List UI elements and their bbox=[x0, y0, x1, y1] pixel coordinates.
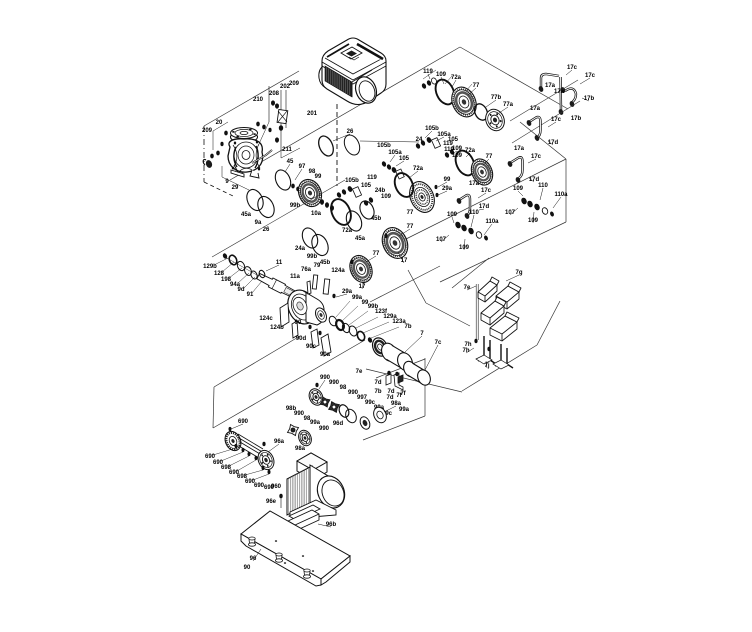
svg-text:109: 109 bbox=[447, 212, 458, 218]
svg-text:90: 90 bbox=[244, 565, 251, 571]
svg-text:17a: 17a bbox=[514, 146, 525, 152]
svg-text:110a: 110a bbox=[485, 219, 499, 225]
svg-text:7d: 7d bbox=[374, 380, 381, 386]
svg-text:107: 107 bbox=[436, 237, 447, 243]
svg-text:119: 119 bbox=[423, 69, 433, 75]
svg-text:29: 29 bbox=[232, 185, 239, 191]
svg-text:24a: 24a bbox=[295, 246, 306, 252]
svg-text:211: 211 bbox=[282, 147, 292, 153]
svg-text:96e: 96e bbox=[266, 499, 277, 505]
svg-text:124a: 124a bbox=[331, 268, 345, 274]
svg-text:77: 77 bbox=[407, 210, 414, 216]
svg-text:9a: 9a bbox=[255, 220, 262, 226]
svg-text:99b: 99b bbox=[290, 203, 301, 209]
svg-text:7d: 7d bbox=[387, 389, 394, 395]
svg-text:96b: 96b bbox=[326, 522, 337, 528]
svg-text:96: 96 bbox=[250, 556, 257, 562]
svg-text:960: 960 bbox=[271, 484, 282, 490]
svg-text:107: 107 bbox=[505, 210, 516, 216]
svg-text:17a: 17a bbox=[530, 106, 541, 112]
svg-text:7e: 7e bbox=[464, 285, 471, 291]
svg-text:26: 26 bbox=[263, 227, 270, 233]
svg-text:90: 90 bbox=[295, 320, 302, 326]
svg-text:17: 17 bbox=[359, 284, 366, 290]
svg-text:7e: 7e bbox=[356, 369, 363, 375]
svg-text:209: 209 bbox=[289, 81, 300, 87]
svg-text:77: 77 bbox=[486, 154, 493, 160]
svg-text:690: 690 bbox=[238, 419, 249, 425]
svg-text:124b: 124b bbox=[270, 325, 284, 331]
svg-text:45: 45 bbox=[287, 159, 294, 165]
svg-text:20: 20 bbox=[216, 120, 223, 126]
svg-text:99a: 99a bbox=[399, 407, 410, 413]
svg-text:72a: 72a bbox=[342, 228, 353, 234]
svg-text:79: 79 bbox=[314, 263, 321, 269]
svg-text:210: 210 bbox=[253, 97, 264, 103]
svg-text:7b: 7b bbox=[404, 324, 411, 330]
svg-text:90d: 90d bbox=[296, 336, 307, 342]
svg-text:7c: 7c bbox=[435, 340, 442, 346]
svg-text:990: 990 bbox=[319, 426, 330, 432]
svg-text:109: 109 bbox=[513, 186, 524, 192]
svg-text:17d: 17d bbox=[479, 204, 490, 210]
svg-text:17b: 17b bbox=[584, 96, 595, 102]
svg-text:11a: 11a bbox=[290, 274, 300, 280]
svg-text:201: 201 bbox=[307, 111, 318, 117]
svg-text:96a: 96a bbox=[274, 439, 285, 445]
svg-text:124c: 124c bbox=[259, 316, 273, 322]
svg-text:9d: 9d bbox=[237, 287, 244, 293]
svg-text:105: 105 bbox=[399, 156, 410, 162]
svg-text:990: 990 bbox=[329, 380, 340, 386]
svg-text:96d: 96d bbox=[333, 421, 344, 427]
svg-text:45a: 45a bbox=[355, 236, 366, 242]
svg-text:99b: 99b bbox=[307, 254, 318, 260]
svg-text:109: 109 bbox=[528, 218, 539, 224]
svg-text:17c: 17c bbox=[585, 73, 596, 79]
svg-text:209: 209 bbox=[202, 128, 213, 134]
svg-text:105b: 105b bbox=[377, 143, 391, 149]
svg-text:17a: 17a bbox=[469, 181, 480, 187]
svg-text:105: 105 bbox=[361, 183, 372, 189]
svg-text:97: 97 bbox=[299, 164, 306, 170]
svg-text:109: 109 bbox=[459, 245, 470, 251]
svg-text:77b: 77b bbox=[491, 95, 502, 101]
svg-text:91: 91 bbox=[247, 292, 254, 298]
svg-text:29a: 29a bbox=[442, 186, 453, 192]
svg-text:45b: 45b bbox=[320, 260, 331, 266]
svg-text:17b: 17b bbox=[571, 116, 582, 122]
svg-text:7j: 7j bbox=[484, 363, 489, 369]
svg-text:119: 119 bbox=[367, 175, 377, 181]
svg-text:110: 110 bbox=[469, 210, 479, 216]
svg-text:105b: 105b bbox=[345, 178, 359, 184]
svg-text:99: 99 bbox=[444, 177, 451, 183]
svg-text:90c: 90c bbox=[306, 344, 317, 350]
svg-text:17d: 17d bbox=[548, 140, 559, 146]
svg-text:90a: 90a bbox=[320, 352, 331, 358]
svg-text:7b: 7b bbox=[374, 389, 381, 395]
svg-text:109: 109 bbox=[436, 72, 447, 78]
svg-text:17c: 17c bbox=[531, 154, 542, 160]
svg-text:77: 77 bbox=[373, 251, 380, 257]
svg-text:72a: 72a bbox=[413, 166, 424, 172]
svg-text:77: 77 bbox=[407, 224, 414, 230]
svg-text:77: 77 bbox=[473, 83, 480, 89]
svg-text:109: 109 bbox=[452, 153, 463, 159]
svg-text:109: 109 bbox=[381, 194, 392, 200]
svg-text:72a: 72a bbox=[465, 148, 476, 154]
svg-text:7h: 7h bbox=[462, 348, 469, 354]
svg-text:110: 110 bbox=[538, 183, 548, 189]
svg-text:17c: 17c bbox=[551, 117, 562, 123]
svg-text:72a: 72a bbox=[451, 75, 462, 81]
svg-text:26: 26 bbox=[347, 129, 354, 135]
svg-text:76a: 76a bbox=[301, 267, 312, 273]
svg-text:98: 98 bbox=[340, 385, 347, 391]
svg-text:98a: 98a bbox=[295, 446, 306, 452]
svg-text:11: 11 bbox=[276, 260, 283, 266]
svg-text:110a: 110a bbox=[554, 192, 568, 198]
svg-text:17a: 17a bbox=[554, 89, 565, 95]
svg-text:77a: 77a bbox=[503, 102, 514, 108]
svg-text:45a: 45a bbox=[241, 212, 252, 218]
svg-text:208: 208 bbox=[269, 91, 280, 97]
svg-text:17: 17 bbox=[401, 258, 408, 264]
svg-text:10a: 10a bbox=[311, 211, 322, 217]
svg-text:45b: 45b bbox=[371, 216, 382, 222]
svg-text:129b: 129b bbox=[203, 264, 217, 270]
svg-text:17c: 17c bbox=[481, 188, 492, 194]
svg-text:99: 99 bbox=[315, 174, 322, 180]
svg-text:7g: 7g bbox=[515, 270, 522, 276]
svg-text:17c: 17c bbox=[567, 65, 578, 71]
